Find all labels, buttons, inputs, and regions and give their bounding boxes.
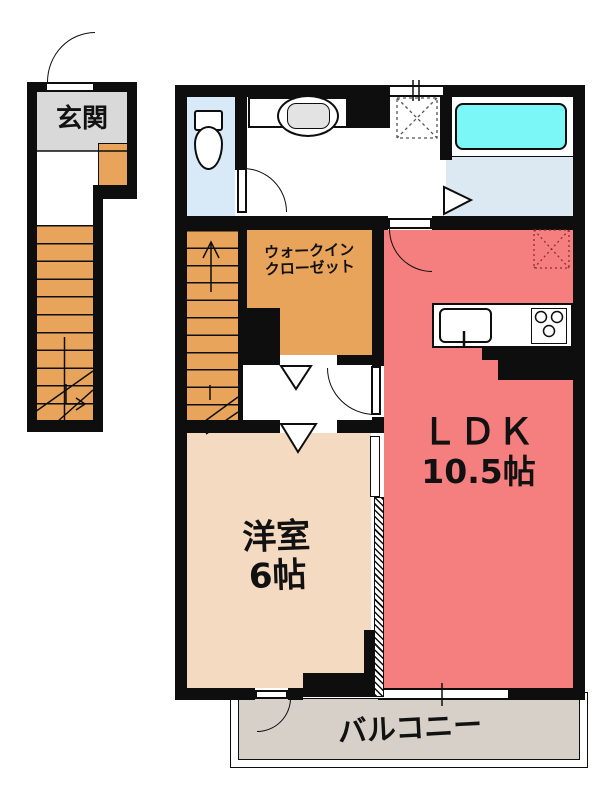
youshitsu-label: 洋室 6帖 [186, 515, 369, 599]
youshitsu-door-fold-icon [281, 424, 316, 452]
youshitsu-label-line2: 6帖 [187, 554, 368, 599]
floor-plan: 玄関 ウォークイン クローゼット 洋室 6帖 ＬＤＫ 10.5帖 バルコニー [0, 0, 610, 800]
washer-space-icon [397, 98, 437, 138]
stove-burners [536, 312, 563, 337]
fridge-space-icon [534, 230, 569, 268]
youshitsu-label-line1: 洋室 [186, 515, 367, 560]
genkan-label: 玄関 [36, 105, 128, 135]
window-ticks [413, 80, 442, 706]
interior-stairs-marks [190, 242, 238, 434]
ldk-label-line1: ＬＤＫ [384, 412, 573, 453]
ldk-label: ＬＤＫ 10.5帖 [384, 412, 573, 491]
outer-stairs-marks [35, 337, 93, 422]
ldk-label-line2: 10.5帖 [384, 453, 573, 491]
wic-label: ウォークイン クローゼット [246, 241, 372, 280]
wic-door-fold-icon [281, 366, 311, 389]
bath-door-fold-icon [444, 187, 471, 214]
